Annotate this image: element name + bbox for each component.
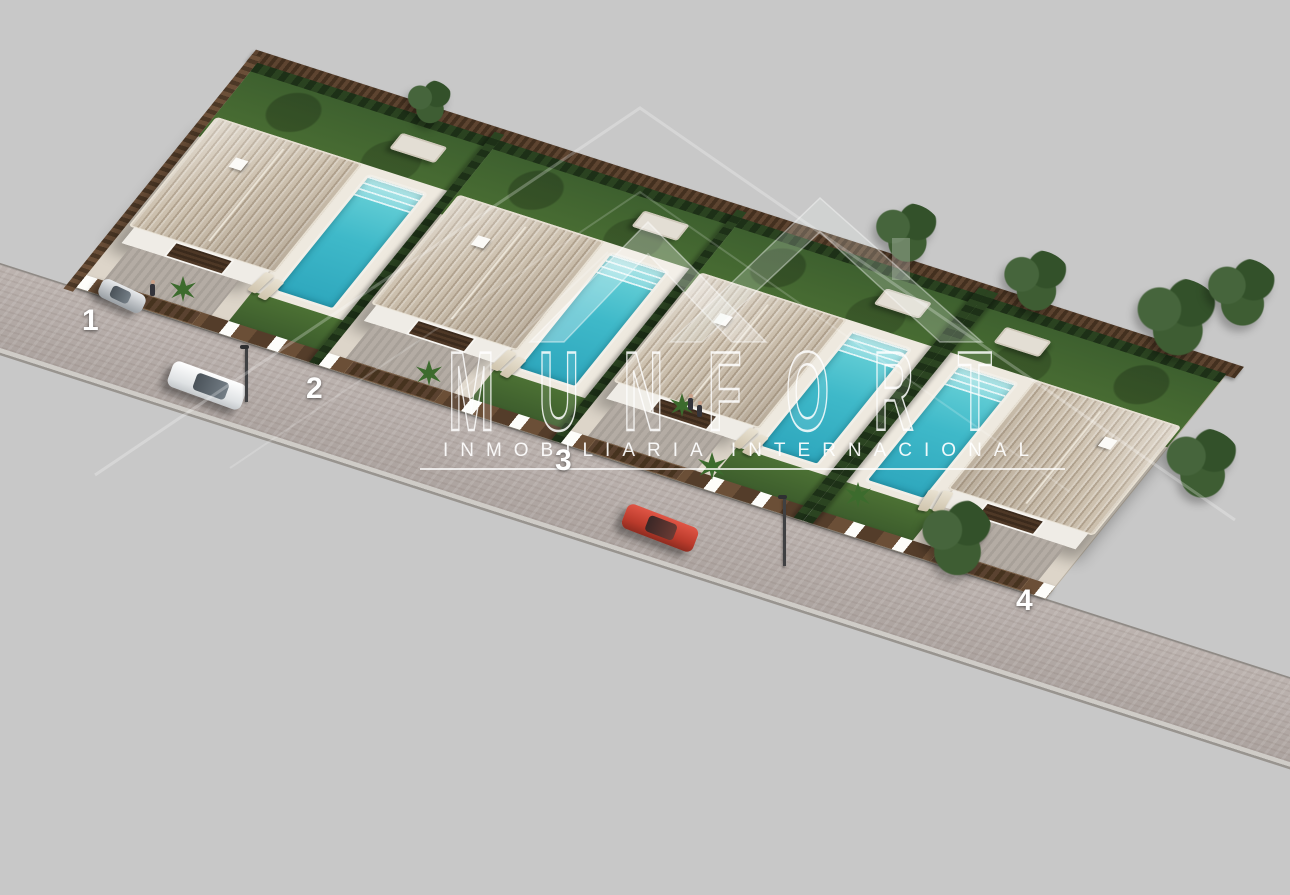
street-lamp xyxy=(783,498,786,566)
villa-number-2: 2 xyxy=(306,374,323,404)
pine-tree xyxy=(998,250,1072,314)
villa-number-1: 1 xyxy=(82,306,99,336)
tree xyxy=(404,80,454,126)
watermark-rule xyxy=(420,468,1065,470)
pine-tree xyxy=(870,203,942,265)
watermark-brand-wrap: MUNFORT xyxy=(97,336,1290,448)
aerial-render-stage: MUNFORT INMOBILIARIA INTERNACIONAL 1 2 3… xyxy=(0,0,1290,698)
watermark-tagline-text: INMOBILIARIA INTERNACIONAL xyxy=(443,440,1041,462)
villa-number-3: 3 xyxy=(555,446,572,476)
watermark-brand-text: MUNFORT xyxy=(448,336,1036,448)
pine-tree xyxy=(1202,258,1280,330)
watermark-tagline-wrap: INMOBILIARIA INTERNACIONAL xyxy=(97,440,1290,462)
pine-tree xyxy=(918,498,994,582)
villa-number-4: 4 xyxy=(1016,586,1033,616)
person-figure xyxy=(150,284,155,296)
